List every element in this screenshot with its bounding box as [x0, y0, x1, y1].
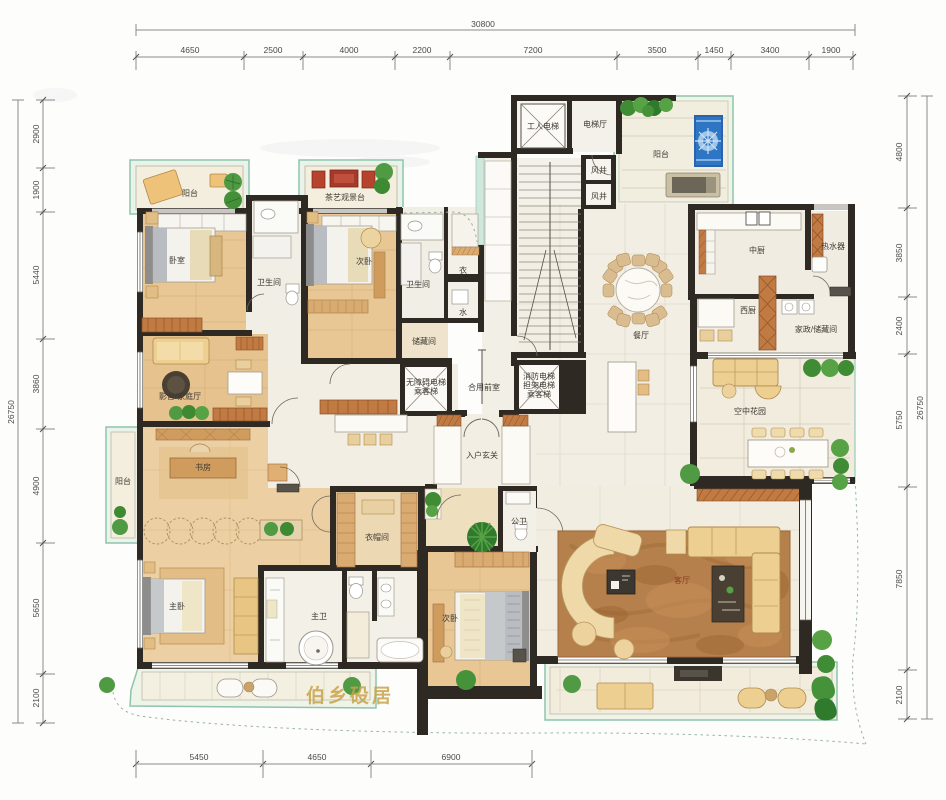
svg-text:2200: 2200: [413, 45, 432, 55]
svg-text:次卧: 次卧: [356, 256, 372, 266]
svg-text:2100: 2100: [894, 685, 904, 704]
svg-text:茶艺观景台: 茶艺观景台: [325, 192, 365, 202]
svg-text:合用前室: 合用前室: [468, 382, 500, 392]
svg-text:30800: 30800: [471, 19, 495, 29]
svg-text:主卧: 主卧: [169, 601, 185, 611]
svg-text:3860: 3860: [31, 374, 41, 393]
svg-text:阳台: 阳台: [115, 476, 131, 486]
svg-text:7850: 7850: [894, 569, 904, 588]
svg-text:3850: 3850: [894, 243, 904, 262]
svg-text:2900: 2900: [31, 124, 41, 143]
svg-text:4000: 4000: [340, 45, 359, 55]
svg-text:中厨: 中厨: [749, 245, 765, 255]
svg-text:主卫: 主卫: [311, 611, 327, 621]
svg-text:2400: 2400: [894, 316, 904, 335]
svg-text:2500: 2500: [264, 45, 283, 55]
svg-text:电梯厅: 电梯厅: [583, 119, 607, 129]
svg-text:储藏间: 储藏间: [412, 336, 436, 346]
svg-text:客厅: 客厅: [674, 575, 690, 585]
svg-text:5750: 5750: [894, 410, 904, 429]
svg-text:伯乡砓居: 伯乡砓居: [306, 684, 394, 707]
svg-text:衣: 衣: [459, 265, 467, 275]
svg-text:5450: 5450: [190, 752, 209, 762]
svg-text:4650: 4650: [181, 45, 200, 55]
svg-text:3500: 3500: [648, 45, 667, 55]
svg-text:工人电梯: 工人电梯: [527, 121, 559, 131]
svg-text:风井: 风井: [591, 165, 607, 175]
svg-text:书房: 书房: [195, 462, 211, 472]
svg-text:无障碍电梯: 无障碍电梯: [406, 377, 446, 387]
svg-text:乘客梯: 乘客梯: [527, 389, 551, 399]
svg-text:水: 水: [459, 307, 467, 317]
svg-text:26750: 26750: [6, 400, 16, 424]
svg-text:6900: 6900: [442, 752, 461, 762]
svg-text:热水器: 热水器: [821, 241, 845, 251]
svg-text:3400: 3400: [761, 45, 780, 55]
svg-text:担架电梯: 担架电梯: [523, 380, 555, 390]
svg-text:次卧: 次卧: [442, 613, 458, 623]
svg-text:公卫: 公卫: [511, 517, 527, 526]
svg-text:2100: 2100: [31, 688, 41, 707]
svg-text:卧室: 卧室: [169, 255, 185, 265]
svg-text:4800: 4800: [894, 142, 904, 161]
svg-text:4650: 4650: [308, 752, 327, 762]
svg-text:空中花园: 空中花园: [734, 406, 766, 416]
svg-text:阳台: 阳台: [653, 149, 669, 159]
svg-text:消防电梯: 消防电梯: [523, 371, 555, 381]
svg-text:4900: 4900: [31, 476, 41, 495]
svg-text:乘客梯: 乘客梯: [414, 386, 438, 396]
svg-text:1450: 1450: [705, 45, 724, 55]
svg-text:餐厅: 餐厅: [633, 331, 649, 340]
svg-text:1900: 1900: [31, 180, 41, 199]
svg-text:卫生间: 卫生间: [257, 277, 281, 287]
svg-text:风井: 风井: [591, 191, 607, 201]
svg-text:家政/储藏间: 家政/储藏间: [795, 324, 837, 334]
svg-text:衣帽间: 衣帽间: [365, 532, 389, 542]
svg-text:5440: 5440: [31, 265, 41, 284]
svg-text:影音/家庭厅: 影音/家庭厅: [159, 391, 201, 401]
svg-text:5650: 5650: [31, 598, 41, 617]
svg-text:卫生间: 卫生间: [406, 279, 430, 289]
svg-text:26750: 26750: [915, 396, 925, 420]
svg-text:西厨: 西厨: [740, 306, 756, 315]
svg-text:1900: 1900: [822, 45, 841, 55]
svg-text:阳台: 阳台: [182, 188, 198, 198]
svg-text:入户玄关: 入户玄关: [466, 450, 498, 460]
svg-text:7200: 7200: [524, 45, 543, 55]
